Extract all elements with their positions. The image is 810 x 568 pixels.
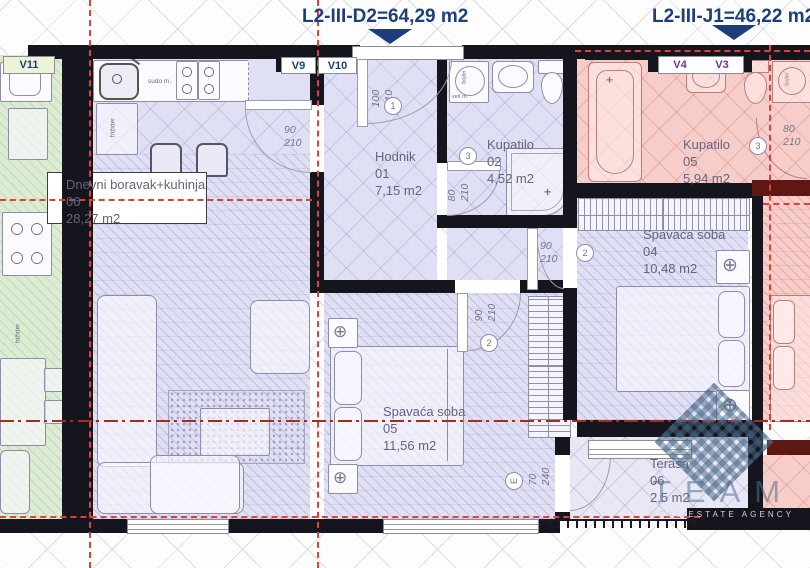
kitchen-sink-label: sudo m. xyxy=(148,78,171,85)
terrace-railing xyxy=(540,519,696,528)
nightstand2b-mark-icon: ⊕ xyxy=(333,469,347,486)
wall-bedroom2-top-a xyxy=(310,280,455,293)
agency-tagline: REAL ESTATE AGENCY xyxy=(650,510,810,519)
armchair-bottom xyxy=(150,455,240,514)
axis-line-v2 xyxy=(317,0,319,568)
armchair-right xyxy=(250,300,310,374)
bedroom1-door-opening xyxy=(563,228,577,288)
wall-bottom-a xyxy=(0,519,127,533)
bath1-door-dims: 80 210 xyxy=(446,184,471,202)
sink-bath1 xyxy=(492,61,534,93)
room-area: 28,27 m2 xyxy=(66,210,205,227)
boiler-1-circle-icon xyxy=(455,66,485,96)
coffee-table xyxy=(200,408,270,456)
terrace-door-number: E xyxy=(505,472,523,490)
living-door-leaf xyxy=(245,100,312,110)
room-name: Spavaća soba xyxy=(383,403,465,420)
vent-label-v4v3: V4 V3 xyxy=(658,56,744,74)
bed1-pillow-1 xyxy=(718,291,745,338)
window-bedroom2 xyxy=(383,519,539,534)
entry-door-leaf xyxy=(357,59,368,127)
room-label-living: Dnevni boravak+kuhinja 06 28,27 m2 xyxy=(66,176,205,227)
bath2-door-dims: 80 210 xyxy=(783,123,801,148)
boiler-1: bojler veš m. xyxy=(449,61,489,103)
boiler-2: bojler xyxy=(772,61,810,103)
room-area: 10,48 m2 xyxy=(643,260,725,277)
bedroom1-door-number: 2 xyxy=(576,244,594,262)
bedroom1-door-leaf xyxy=(527,228,538,290)
stove-right xyxy=(198,61,220,100)
bedroom2-door-dims: 90 210 xyxy=(473,304,498,322)
door-width: 80 xyxy=(783,123,801,136)
stove-left xyxy=(176,61,198,100)
bed1-pillow-2 xyxy=(718,340,745,387)
vent-label-v4: V4 xyxy=(673,59,686,71)
room-area: 11,56 m2 xyxy=(383,437,465,454)
room-label-bedroom1: Spavaća soba 04 10,48 m2 xyxy=(643,226,725,277)
neighbor-bed-pillow-1 xyxy=(773,300,795,344)
green-fridge-label: frižider xyxy=(14,324,21,344)
nightstand2a-mark-icon: ⊕ xyxy=(333,323,347,340)
bed2-pillow-2 xyxy=(334,407,362,461)
fridge: frižider xyxy=(96,103,138,155)
room-area: 4,52 m2 xyxy=(487,170,534,187)
bedroom2-door-opening xyxy=(455,280,520,293)
bedroom1-door-dims: 90 210 xyxy=(540,240,558,265)
window-living xyxy=(127,519,229,534)
bedroom2-door-number: 2 xyxy=(480,334,498,352)
wall-terrace-left-a xyxy=(555,437,570,455)
entry-opening xyxy=(352,46,464,60)
wall-apartment-divider-top xyxy=(563,45,577,198)
green-stove xyxy=(2,212,52,276)
washer-1-label: veš m. xyxy=(452,94,468,100)
room-num: 04 xyxy=(643,243,725,260)
wall-bottom-b xyxy=(227,519,383,533)
wall-neighbor-maroon-b xyxy=(767,440,810,455)
room-label-bedroom2: Spavaća soba 05 11,56 m2 xyxy=(383,403,465,454)
room-name: Dnevni boravak+kuhinja xyxy=(66,176,205,193)
kitchen-sink-drain-icon xyxy=(112,74,122,84)
door-height: 210 xyxy=(459,184,472,202)
wall-bedroom1-left-b xyxy=(563,288,577,420)
door-height: 210 xyxy=(783,136,801,149)
room-name: Hodnik xyxy=(375,148,422,165)
agency-name: TEAM xyxy=(652,474,810,510)
unit-j1-pointer-icon xyxy=(712,25,756,40)
axis-line-h5 xyxy=(763,203,810,205)
room-num: 05 xyxy=(683,153,730,170)
bed2-pillow-1 xyxy=(334,351,362,405)
entry-door-number: 1 xyxy=(384,97,402,115)
shower-drain-icon: + xyxy=(544,186,551,198)
unit-d2-pointer-icon xyxy=(368,29,412,44)
terrace-door-opening xyxy=(555,455,570,512)
door-width: 70 xyxy=(527,468,540,486)
axis-line-v3 xyxy=(769,45,771,430)
boiler-2-label: bojler xyxy=(785,72,791,85)
room-area: 7,15 m2 xyxy=(375,182,422,199)
terrace-door-dims: 70 240 xyxy=(527,468,552,486)
boiler-1-label: bojler xyxy=(462,70,468,83)
green-table xyxy=(0,358,46,446)
door-width: 90 xyxy=(540,240,558,253)
room-num: 05 xyxy=(383,420,465,437)
wall-neighbor-vertical xyxy=(752,196,763,420)
door-width: 90 xyxy=(284,124,302,137)
green-fridge xyxy=(8,108,48,160)
axis-line-v1 xyxy=(89,0,91,568)
room-name: Kupatilo xyxy=(683,136,730,153)
fridge-label: frižider xyxy=(109,118,116,138)
green-sofa xyxy=(0,450,30,514)
bath1-door-number: 3 xyxy=(459,147,477,165)
sofa-vertical xyxy=(97,295,157,467)
room-label-bath2: Kupatilo 05 5,94 m2 xyxy=(683,136,730,187)
green-chair-1 xyxy=(44,368,64,392)
door-height: 210 xyxy=(486,304,499,322)
door-height: 210 xyxy=(284,137,302,150)
room-name: Kupatilo xyxy=(487,136,534,153)
room-num: 02 xyxy=(487,153,534,170)
room-num: 01 xyxy=(375,165,422,182)
wall-bath1-bottom xyxy=(437,215,577,228)
bath2-door-number: 3 xyxy=(749,137,767,155)
sink-bath1-bowl-icon xyxy=(498,65,528,88)
door-letter: E xyxy=(509,478,519,484)
bathtub-inner xyxy=(596,70,634,174)
door-height: 240 xyxy=(540,468,553,486)
wall-neighbor-maroon-a xyxy=(752,180,810,196)
neighbor-bed-pillow-2 xyxy=(773,346,795,390)
living-door-dims: 90 210 xyxy=(284,124,302,149)
door-width: 80 xyxy=(446,184,459,202)
room-name: Spavaća soba xyxy=(643,226,725,243)
room-label-hallway: Hodnik 01 7,15 m2 xyxy=(375,148,422,199)
door-width: 90 xyxy=(473,304,486,322)
room-num: 06 xyxy=(66,193,205,210)
boiler-2-circle-icon xyxy=(778,67,806,95)
unit-label-d2: L2-III-D2=64,29 m2 xyxy=(302,6,468,28)
bedroom2-door-leaf xyxy=(457,293,468,352)
bathtub-drain-icon: + xyxy=(606,74,613,86)
wall-bedroom1-left-a xyxy=(563,198,577,228)
room-area: 5,94 m2 xyxy=(683,170,730,187)
floor-plan: L2-III-D2=64,29 m2 L2-III-J1=46,22 m2 V1… xyxy=(0,0,810,568)
room-label-bath1: Kupatilo 02 4,52 m2 xyxy=(487,136,534,187)
door-width: 100 xyxy=(370,90,383,108)
vent-label-v3: V3 xyxy=(715,59,728,71)
door-height: 210 xyxy=(540,253,558,266)
vent-label-v11: V11 xyxy=(3,56,55,74)
vent-label-v9: V9 xyxy=(281,57,316,74)
vent-label-v10: V10 xyxy=(318,57,357,74)
axis-line-h1 xyxy=(575,50,810,52)
axis-line-h4 xyxy=(0,516,700,518)
bathtub xyxy=(588,62,642,182)
